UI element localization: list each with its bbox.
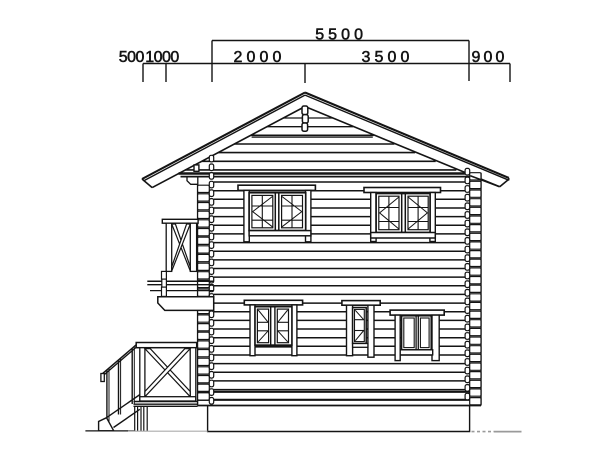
svg-text:500: 500	[119, 49, 145, 66]
